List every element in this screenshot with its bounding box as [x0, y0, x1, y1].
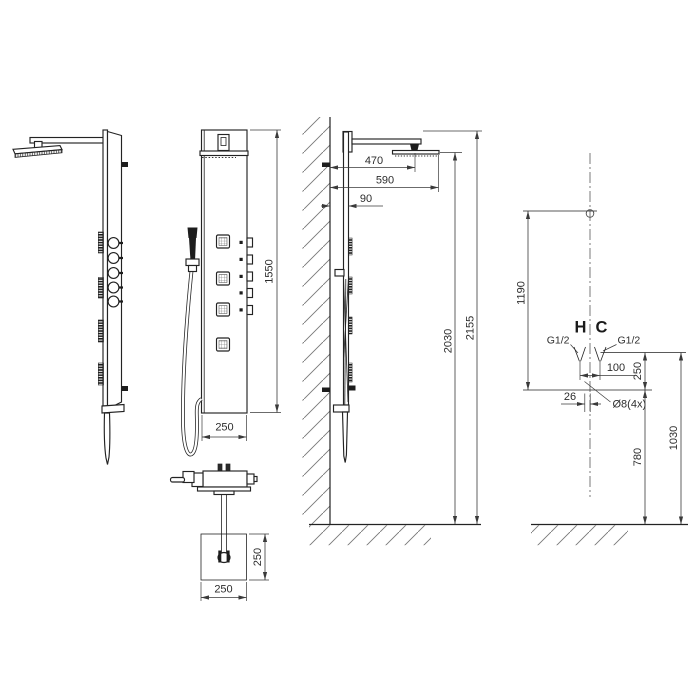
panel-base-side [334, 405, 350, 412]
panel-base [102, 405, 124, 414]
dim-250-front: 250 [202, 415, 247, 441]
front-view: 1550 250 [183, 130, 281, 455]
mixer-stub [218, 464, 222, 472]
handshower-holder-lower [189, 266, 197, 272]
mixer-body [203, 471, 247, 487]
cold-connection-symbol [595, 347, 607, 362]
dim-label-1030: 1030 [668, 426, 680, 450]
mixer-knob-side [349, 386, 356, 391]
body-jet-edge [98, 363, 103, 385]
hose-outline [183, 271, 202, 455]
dim-label-590: 590 [376, 175, 394, 187]
cold-label: C [596, 319, 608, 337]
side-knob-top [122, 162, 129, 167]
dim-1190: 1190 [516, 211, 529, 390]
installation-diagram: 1190 H C G1/2 G1/2 100 250 [516, 153, 689, 545]
hand-shower [183, 228, 202, 455]
lower-spout-side [343, 412, 348, 463]
holes-callout: Ø8(4x) [585, 382, 647, 411]
handshower-head [188, 228, 198, 239]
left-perspective-view [13, 130, 128, 465]
dim-label-470: 470 [365, 155, 383, 167]
dim-26: 26 [561, 391, 601, 412]
floor-hatching-install [531, 525, 628, 545]
mixer-base-plate [198, 487, 251, 491]
jet-profile [349, 277, 353, 294]
mixer-right-knob [247, 474, 254, 484]
dim-label-1550: 1550 [264, 259, 276, 283]
holes-leader [585, 382, 611, 403]
thread-label-left: G1/2 [547, 335, 570, 347]
thread-label-right: G1/2 [618, 335, 641, 347]
overhead-shower-edge [200, 151, 248, 156]
mixer-stub [226, 464, 230, 472]
arm-bracket [218, 135, 229, 151]
side-view: 470 590 90 2030 2155 [303, 117, 483, 545]
body-jet-edge [98, 232, 103, 253]
dim-label-250-width: 250 [214, 584, 232, 596]
wall-fixing-bottom [322, 388, 330, 393]
dim-2155: 2155 [423, 131, 482, 524]
dim-label-780: 780 [632, 448, 644, 466]
side-knob-bottom [122, 386, 129, 391]
dim-label-250-depth: 250 [252, 548, 264, 566]
dim-470: 470 [330, 153, 415, 172]
shower-panel-dimension-drawing: 1550 250 250 [0, 0, 700, 700]
dim-label-250-front: 250 [215, 422, 233, 434]
dim-1550: 1550 [250, 130, 281, 413]
dim-1030: 1030 [668, 353, 681, 525]
holes-label: Ø8(4x) [613, 399, 647, 411]
body-jet-edge [98, 320, 103, 342]
spout-outlet-side [218, 551, 221, 563]
dim-250-plate-depth: 250 [249, 534, 269, 580]
lever-rod [171, 478, 185, 483]
dim-label-100: 100 [607, 362, 625, 374]
jet-profile [349, 363, 353, 382]
floor-hatching [309, 525, 431, 545]
panel-profile [344, 132, 349, 405]
wall-fixing-top [322, 163, 330, 168]
head-connector-side [410, 144, 419, 151]
handshower-grip [189, 238, 196, 261]
spout-outlet-side [227, 551, 230, 563]
dim-250-plate-width: 250 [201, 582, 247, 601]
lower-spout [104, 413, 110, 465]
shower-arm-side [352, 139, 421, 144]
spout-joint [214, 491, 234, 495]
hot-label: H [575, 319, 587, 337]
dim-label-2030: 2030 [443, 329, 455, 353]
hot-connection-symbol [574, 347, 586, 362]
dim-label-1190: 1190 [516, 281, 528, 305]
technical-drawing-canvas: 1550 250 250 [0, 0, 700, 700]
dim-label-250-install: 250 [632, 362, 644, 380]
dim-2030: 2030 [440, 153, 462, 525]
wall-hatching [303, 117, 330, 525]
jet-profile [349, 317, 353, 334]
body-jet-edge [98, 278, 103, 299]
dim-100: 100 [580, 362, 634, 380]
handshower-holder [186, 259, 199, 266]
dim-label-26: 26 [564, 391, 576, 403]
spout-detail-view: 250 250 [171, 464, 270, 601]
dim-label-2155: 2155 [465, 316, 477, 340]
dim-250-install: 250 [632, 353, 645, 391]
rain-head-side [393, 151, 440, 155]
holder-profile [335, 270, 344, 277]
dim-label-90: 90 [360, 193, 372, 205]
mixer-right-knob-cap [254, 477, 257, 482]
jet-profile [349, 238, 353, 255]
